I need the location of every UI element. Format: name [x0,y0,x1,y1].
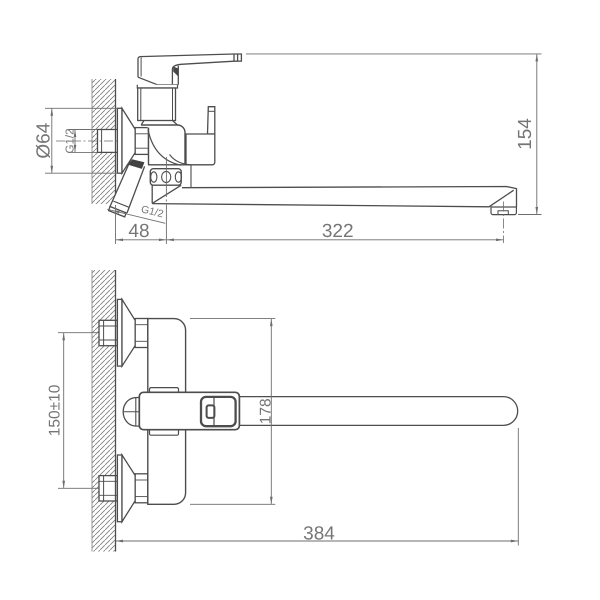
svg-text:384: 384 [303,523,335,544]
svg-text:G1/2: G1/2 [65,129,77,154]
svg-text:150±10: 150±10 [47,384,64,436]
svg-text:Ø64: Ø64 [34,122,55,158]
svg-text:322: 322 [322,221,354,242]
svg-text:154: 154 [515,118,536,150]
svg-text:48: 48 [128,221,149,242]
svg-text:178: 178 [258,398,275,424]
